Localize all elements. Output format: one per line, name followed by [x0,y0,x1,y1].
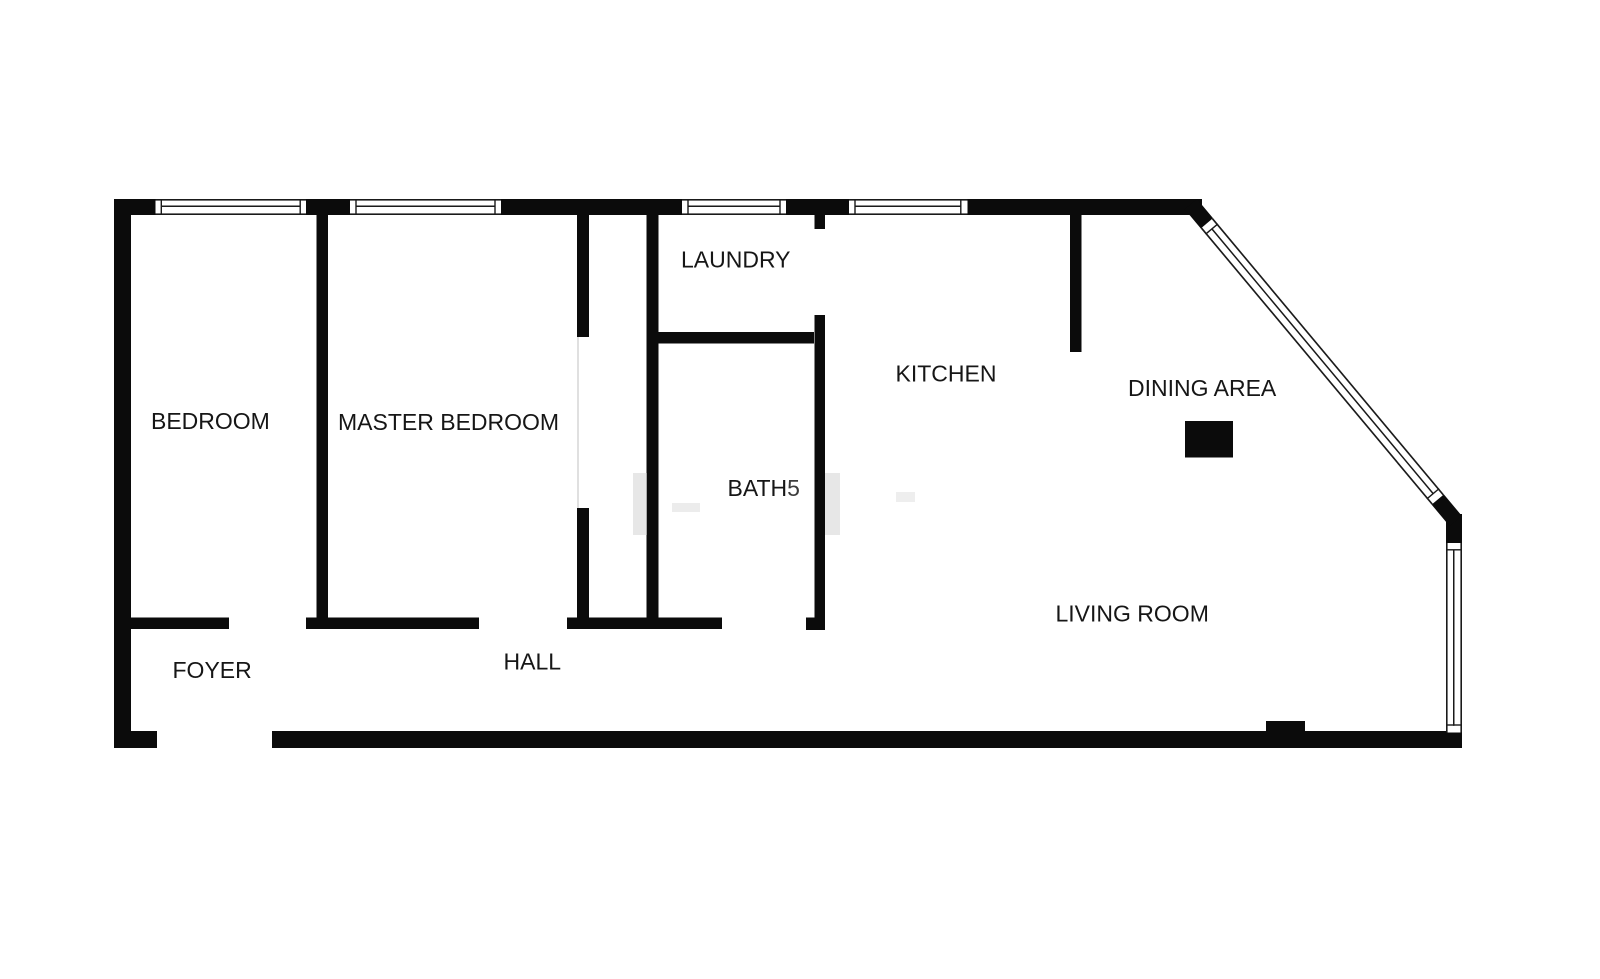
svg-text:MASTER BEDROOM: MASTER BEDROOM [338,409,559,435]
svg-text:LIVING ROOM: LIVING ROOM [1056,601,1209,627]
svg-text:HALL: HALL [504,649,562,675]
svg-text:KITCHEN: KITCHEN [896,361,997,387]
svg-text:BEDROOM: BEDROOM [151,408,270,434]
svg-text:BATH5: BATH5 [728,475,800,501]
svg-text:LAUNDRY: LAUNDRY [681,247,791,273]
svg-text:DINING AREA: DINING AREA [1128,375,1277,401]
svg-text:FOYER: FOYER [173,657,252,683]
